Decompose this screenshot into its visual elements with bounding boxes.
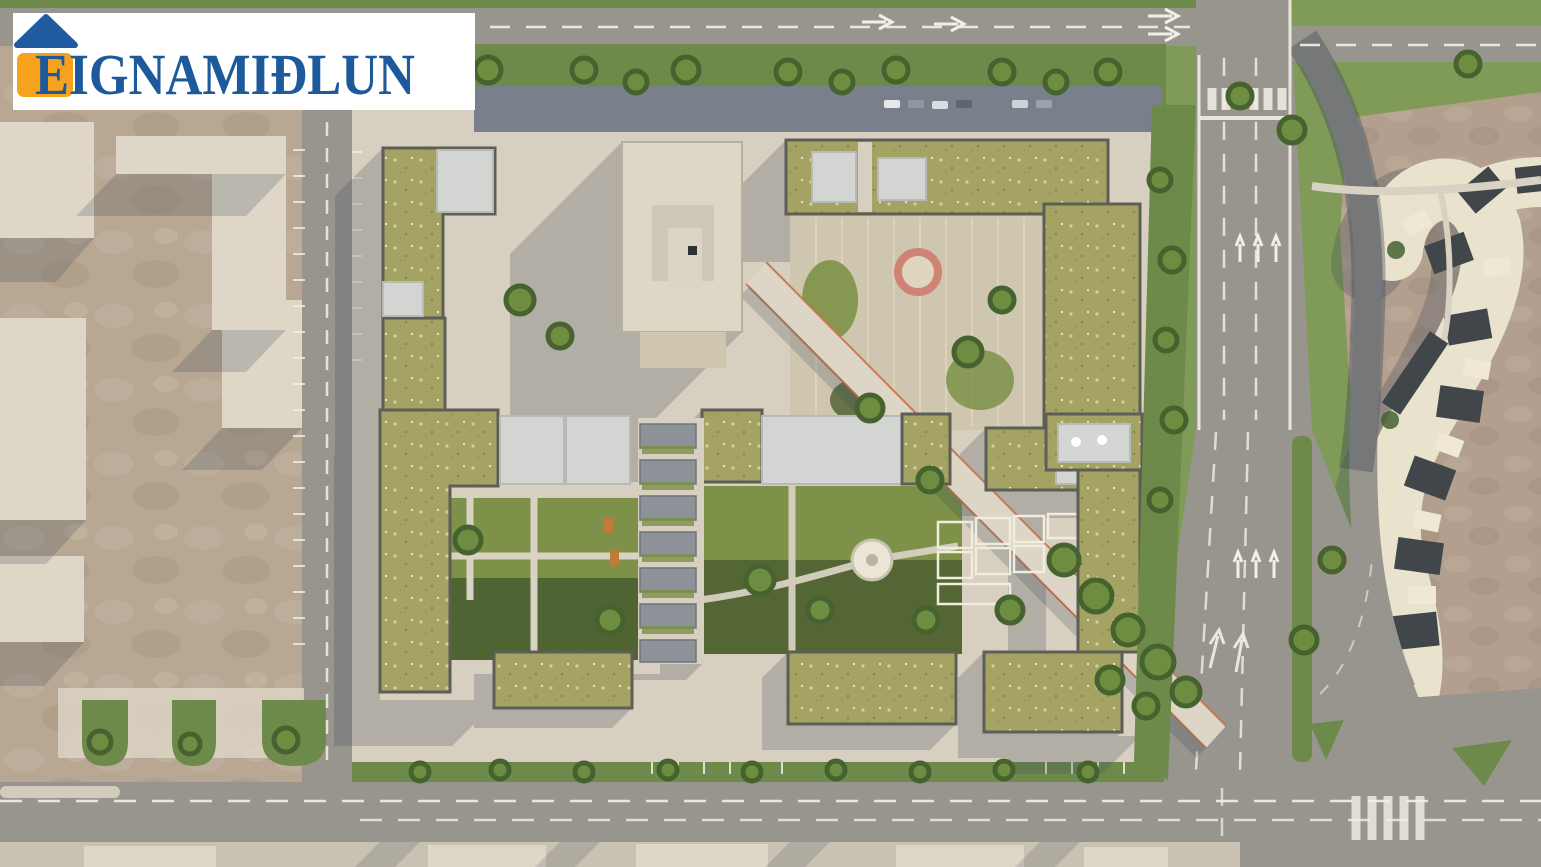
house-roof-shape [17, 17, 75, 45]
building-e-terrace [1058, 424, 1130, 462]
building-d-roof-terrace [762, 416, 902, 484]
median-slab-left [0, 786, 120, 798]
tower-shaft [688, 246, 697, 255]
pink-circle-feature [898, 252, 938, 292]
building-d-west [702, 410, 762, 482]
townhouse-row [638, 418, 704, 664]
tower-entry-steps [640, 332, 726, 368]
c1-roof-terrace-2 [566, 416, 630, 484]
community-tower [622, 142, 742, 368]
building-c1-annex [494, 652, 632, 708]
building-d-south-1 [788, 652, 956, 724]
c1-roof-terrace-1 [500, 416, 564, 484]
road-median [1292, 436, 1312, 762]
bench-2 [610, 550, 619, 565]
logo-text: EIGNAMIÐLUN [35, 46, 415, 104]
aerial-render: EIGNAMIÐLUN [0, 0, 1541, 867]
building-a-roof-terrace [437, 150, 493, 212]
parked-cars [884, 100, 1052, 109]
north-verge [0, 0, 1240, 9]
site-plan-scene [0, 0, 1541, 867]
logo-eignamidlun: EIGNAMIÐLUN [13, 13, 475, 110]
south-strip [0, 842, 1541, 867]
bench-1 [604, 518, 613, 533]
